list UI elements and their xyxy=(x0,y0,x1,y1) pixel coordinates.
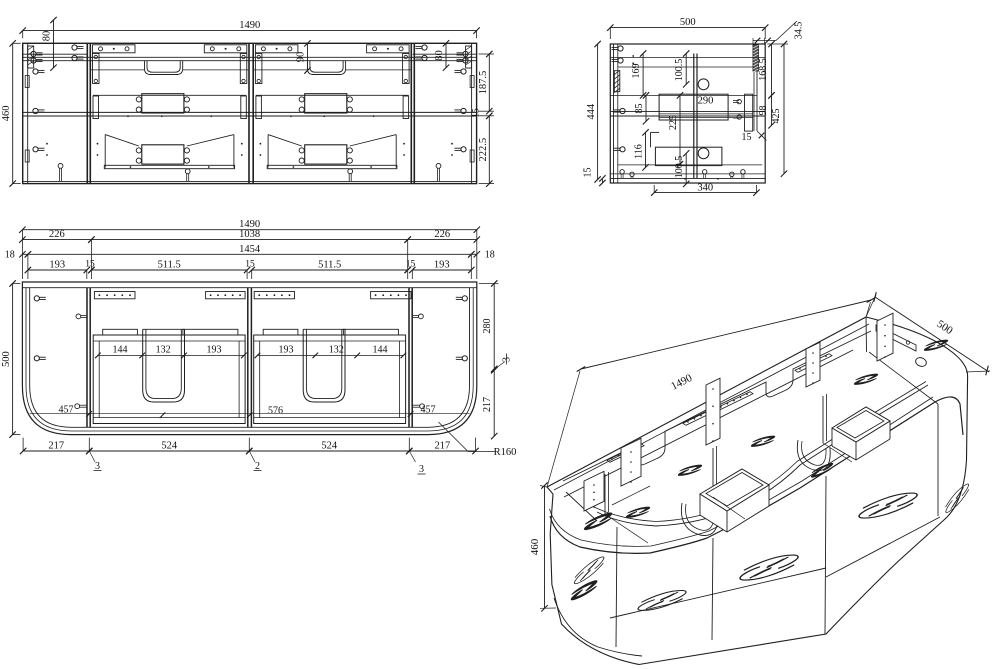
svg-text:132: 132 xyxy=(156,344,171,355)
svg-text:225: 225 xyxy=(668,115,679,130)
svg-text:340: 340 xyxy=(697,183,713,194)
svg-text:460: 460 xyxy=(1,106,12,122)
svg-text:1454: 1454 xyxy=(239,244,261,255)
svg-text:144: 144 xyxy=(113,344,128,355)
svg-text:193: 193 xyxy=(49,260,65,271)
svg-text:15: 15 xyxy=(472,108,482,118)
svg-text:169: 169 xyxy=(631,64,642,79)
svg-text:576: 576 xyxy=(268,406,283,417)
svg-text:15: 15 xyxy=(583,168,594,178)
svg-text:511.5: 511.5 xyxy=(158,260,181,271)
svg-text:226: 226 xyxy=(434,229,450,240)
svg-text:R160: R160 xyxy=(494,447,517,458)
svg-text:193: 193 xyxy=(207,344,222,355)
svg-text:280: 280 xyxy=(482,319,493,334)
svg-text:500: 500 xyxy=(1,351,12,367)
svg-text:444: 444 xyxy=(586,103,597,120)
svg-text:168.5: 168.5 xyxy=(758,58,769,81)
svg-text:222.5: 222.5 xyxy=(478,138,489,162)
svg-text:98: 98 xyxy=(758,106,769,116)
svg-text:18: 18 xyxy=(485,250,495,261)
svg-text:217: 217 xyxy=(48,441,64,452)
svg-text:524: 524 xyxy=(161,441,178,452)
svg-text:290: 290 xyxy=(698,96,714,107)
svg-text:116: 116 xyxy=(634,144,645,159)
svg-text:425: 425 xyxy=(771,109,782,124)
svg-text:18: 18 xyxy=(5,250,15,261)
svg-text:3: 3 xyxy=(502,357,513,362)
svg-text:90: 90 xyxy=(296,52,307,63)
svg-text:1490: 1490 xyxy=(239,20,260,31)
svg-text:144: 144 xyxy=(373,344,388,355)
svg-text:193: 193 xyxy=(434,260,450,271)
svg-text:15: 15 xyxy=(742,132,752,143)
svg-text:460: 460 xyxy=(529,538,541,555)
svg-text:457: 457 xyxy=(59,405,74,416)
svg-text:85: 85 xyxy=(634,104,645,114)
svg-text:3: 3 xyxy=(419,464,424,475)
svg-text:500: 500 xyxy=(680,17,696,28)
svg-text:511.5: 511.5 xyxy=(318,260,341,271)
svg-text:132: 132 xyxy=(329,344,344,355)
svg-text:193: 193 xyxy=(279,344,294,355)
svg-text:187.5: 187.5 xyxy=(478,71,489,95)
svg-text:100.5: 100.5 xyxy=(674,59,685,82)
svg-text:1038: 1038 xyxy=(239,229,260,240)
svg-text:226: 226 xyxy=(49,229,65,240)
svg-text:80: 80 xyxy=(434,50,445,61)
svg-text:100.5: 100.5 xyxy=(674,156,685,179)
svg-text:524: 524 xyxy=(321,441,338,452)
svg-text:80: 80 xyxy=(42,31,53,42)
svg-text:217: 217 xyxy=(435,441,451,452)
svg-text:217: 217 xyxy=(482,397,493,412)
svg-text:457: 457 xyxy=(421,405,436,416)
svg-text:15: 15 xyxy=(85,260,95,270)
svg-text:15: 15 xyxy=(245,260,255,270)
svg-text:34.5: 34.5 xyxy=(794,22,805,40)
svg-text:15: 15 xyxy=(406,260,416,270)
